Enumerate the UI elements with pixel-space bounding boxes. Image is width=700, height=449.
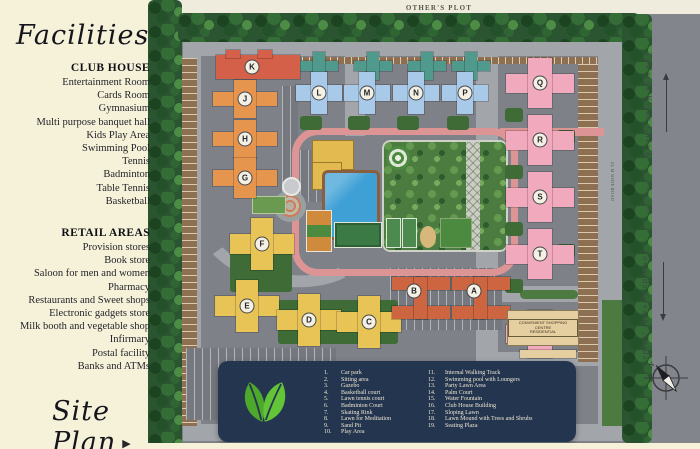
clubhouse-item: Swimming Pool — [0, 142, 150, 155]
clubhouse-item: Entertainment Room — [0, 76, 150, 89]
clubhouse-heading: CLUB HOUSE — [0, 62, 150, 74]
legend-item-number: 16. — [428, 403, 445, 410]
clubhouse-item: Cards Room — [0, 89, 150, 102]
badminton-court — [402, 218, 417, 248]
legend-item-label: Party Lawn Area — [445, 383, 568, 390]
legend-item: 11.Internal Walking Track — [428, 370, 568, 377]
legend-item: 16.Club House Building — [428, 403, 568, 410]
arrow-down-icon — [663, 262, 664, 318]
retail-item: Pharmacy — [0, 281, 150, 294]
shopping-annex — [520, 350, 576, 358]
retail-item: Milk booth and vegetable shop — [0, 320, 150, 333]
outer-road-label: 60 M WIDE ROAD — [645, 174, 650, 213]
legend-item: 5.Lawn tennis court — [324, 396, 428, 403]
shopping-centre-label: CONVENIENT SHOPPING CENTRE RESIDENTIAL — [508, 319, 578, 337]
party-lawn-area — [440, 218, 472, 248]
tower-letter: G — [238, 171, 253, 186]
legend-item: 4.Basketball court — [324, 390, 428, 397]
retail-item: Postal facility — [0, 347, 150, 360]
retail-item: Banks and ATMs — [0, 360, 150, 373]
legend-item: 18.Lawn Mound with Trees and Shrubs — [428, 416, 568, 423]
facilities-panel: Facilities CLUB HOUSE Entertainment Room… — [0, 0, 178, 449]
lawn-pad — [397, 116, 419, 130]
legend-item-label: Water Fountain — [445, 396, 568, 403]
tower-letter: S — [533, 190, 548, 205]
legend-item-number: 9. — [324, 423, 341, 430]
legend-item: 3.Gazebo — [324, 383, 428, 390]
towards-greater-noida-label: Towards Greater Noida — [641, 250, 651, 361]
tower-H: H — [213, 120, 277, 158]
tower-letter: B — [407, 284, 422, 299]
leaf-logo — [218, 375, 310, 429]
site-plan-label: Site Plan▶ — [52, 396, 178, 449]
retail-item: Electronic gadgets store — [0, 307, 150, 320]
tower-E: E — [215, 280, 279, 332]
legend-item: 13.Party Lawn Area — [428, 383, 568, 390]
basketball-court — [306, 210, 332, 252]
legend-item: 12.Swimming pool with Loungers — [428, 377, 568, 384]
legend-item-number: 2. — [324, 377, 341, 384]
legend-item-number: 13. — [428, 383, 445, 390]
tower-letter: Q — [533, 76, 548, 91]
sand-pit — [420, 226, 436, 248]
legend-item-label: Lawn Mound with Trees and Shrubs — [445, 416, 568, 423]
clubhouse-item: Multi purpose banquet hall — [0, 116, 150, 129]
tower-letter: E — [240, 299, 255, 314]
water-fountain — [386, 146, 410, 170]
tower-letter: P — [458, 86, 473, 101]
legend-item-number: 18. — [428, 416, 445, 423]
legend-item-number: 10. — [324, 429, 341, 436]
lawn-pad — [300, 116, 322, 130]
site-plan-page: OTHER'S PLOT — [0, 0, 700, 449]
legend-item-label: Palm Court — [445, 390, 568, 397]
legend-panel: 1.Car park2.Sitting area3.Gazebo4.Basket… — [218, 361, 576, 442]
legend-item-number: 3. — [324, 383, 341, 390]
legend-item: 8.Lawn for Meditation — [324, 416, 428, 423]
tower-L: L — [296, 72, 342, 114]
lawn-pad — [348, 116, 370, 130]
tower-letter: R — [533, 133, 548, 148]
compass-north-label: N — [647, 360, 656, 369]
legend-item-number: 4. — [324, 390, 341, 397]
tower-letter: N — [409, 86, 424, 101]
compass-rose-icon: N — [643, 355, 689, 401]
tower-letter: K — [245, 60, 260, 75]
legend-item-label: Sitting area — [341, 377, 428, 384]
retail-item: Saloon for men and women — [0, 267, 150, 280]
legend-item: 17.Sloping Lawn — [428, 410, 568, 417]
tower-letter: L — [312, 86, 327, 101]
retail-item: Provision stores — [0, 241, 150, 254]
road-median — [520, 290, 578, 299]
legend-item: 2.Sitting area — [324, 377, 428, 384]
legend-item-number: 15. — [428, 396, 445, 403]
legend-item-label: Car park — [341, 370, 428, 377]
tower-M: M — [344, 72, 390, 114]
legend-item: 6.Badminton Court — [324, 403, 428, 410]
legend-item-label: Sloping Lawn — [445, 410, 568, 417]
lawn-tennis-court — [334, 222, 382, 248]
tower-T: T — [506, 229, 574, 279]
legend-item-number: 14. — [428, 390, 445, 397]
shopping-centre: CONVENIENT SHOPPING CENTRE RESIDENTIAL — [507, 310, 579, 346]
clubhouse-item: Kids Play Area — [0, 129, 150, 142]
legend-item-label: Gazebo — [341, 383, 428, 390]
tower-letter: J — [238, 92, 253, 107]
site-plan-arrow-icon: ▶ — [122, 437, 131, 449]
tower-G: G — [213, 158, 277, 198]
legend-item-label: Play Area — [341, 429, 428, 436]
site-plan-text: Site Plan — [52, 396, 116, 449]
legend-item: 1.Car park — [324, 370, 428, 377]
arrow-up-icon — [666, 76, 667, 132]
legend-item-number: 12. — [428, 377, 445, 384]
retail-list: Provision storesBook storeSaloon for men… — [0, 241, 150, 373]
tower-P: P — [442, 72, 488, 114]
tower-letter: A — [467, 284, 482, 299]
tower-letter: T — [533, 247, 548, 262]
legend-col-2: 11.Internal Walking Track12.Swimming poo… — [428, 367, 568, 429]
clubhouse-item: Badminton — [0, 168, 150, 181]
legend-item-number: 1. — [324, 370, 341, 377]
clubhouse-item: Basketball — [0, 195, 150, 208]
legend-item-number: 11. — [428, 370, 445, 377]
legend-item-label: Badminton Court — [341, 403, 428, 410]
clubhouse-item: Gymnasium — [0, 102, 150, 115]
legend-item-label: Club House Building — [445, 403, 568, 410]
tower-letter: H — [238, 132, 253, 147]
tower-N: N — [393, 72, 439, 114]
legend-item-number: 8. — [324, 416, 341, 423]
roundabout — [282, 177, 301, 196]
legend-item: 14.Palm Court — [428, 390, 568, 397]
retail-item: Book store — [0, 254, 150, 267]
clubhouse-item: Table Tennis — [0, 182, 150, 195]
play-area — [252, 196, 286, 214]
towards-kisan-chowk-label: Towards Kisan Chowk — [644, 52, 654, 158]
tower-S: S — [506, 172, 574, 222]
tower-D: D — [277, 294, 341, 346]
clubhouse-item: Tennis — [0, 155, 150, 168]
legend-item-label: Internal Walking Track — [445, 370, 568, 377]
retail-heading: RETAIL AREAS — [0, 227, 150, 239]
inner-road-label: 24 M WIDE ROAD — [610, 162, 615, 201]
tower-J: J — [213, 80, 277, 118]
parking-strip-right — [578, 64, 598, 362]
tower-Q: Q — [506, 58, 574, 108]
tower-R: R — [506, 115, 574, 165]
retail-item: Restaurants and Sweet shops — [0, 294, 150, 307]
legend-item-label: Swimming pool with Loungers — [445, 377, 568, 384]
retail-item: Infirmary — [0, 333, 150, 346]
legend-item-number: 6. — [324, 403, 341, 410]
badminton-court — [386, 218, 401, 248]
legend-item-number: 19. — [428, 423, 445, 430]
clubhouse-list: Entertainment RoomCards RoomGymnasiumMul… — [0, 76, 150, 208]
leaf-icon — [237, 375, 291, 429]
legend-col-1: 1.Car park2.Sitting area3.Gazebo4.Basket… — [324, 367, 428, 436]
tower-F: F — [230, 218, 294, 270]
lawn-pad — [447, 116, 469, 130]
legend-item: 9.Sand Pit — [324, 423, 428, 430]
legend-item-label: Lawn for Meditation — [341, 416, 428, 423]
facilities-title: Facilities — [16, 20, 149, 51]
tower-letter: C — [362, 315, 377, 330]
legend-item-label: Basketball court — [341, 390, 428, 397]
legend-item-label: Lawn tennis court — [341, 396, 428, 403]
legend-item-label: Sand Pit — [341, 423, 428, 430]
green-verge — [602, 300, 622, 426]
tower-letter: F — [255, 237, 270, 252]
legend-item-number: 7. — [324, 410, 341, 417]
tree-border-top — [178, 13, 640, 42]
legend-item: 15.Water Fountain — [428, 396, 568, 403]
tower-C: C — [337, 296, 401, 348]
legend-item: 10.Play Area — [324, 429, 428, 436]
legend-item: 19.Seating Plaza — [428, 423, 568, 430]
tower-K-wing — [226, 50, 240, 58]
shopping-centre-line2: RESIDENTIAL — [511, 330, 575, 335]
legend-item-number: 5. — [324, 396, 341, 403]
legend-item-label: Seating Plaza — [445, 423, 568, 430]
legend-item-number: 17. — [428, 410, 445, 417]
others-plot-label: OTHER'S PLOT — [406, 4, 472, 12]
tower-K-wing — [258, 50, 272, 58]
tower-letter: D — [302, 313, 317, 328]
tower-letter: M — [360, 86, 375, 101]
